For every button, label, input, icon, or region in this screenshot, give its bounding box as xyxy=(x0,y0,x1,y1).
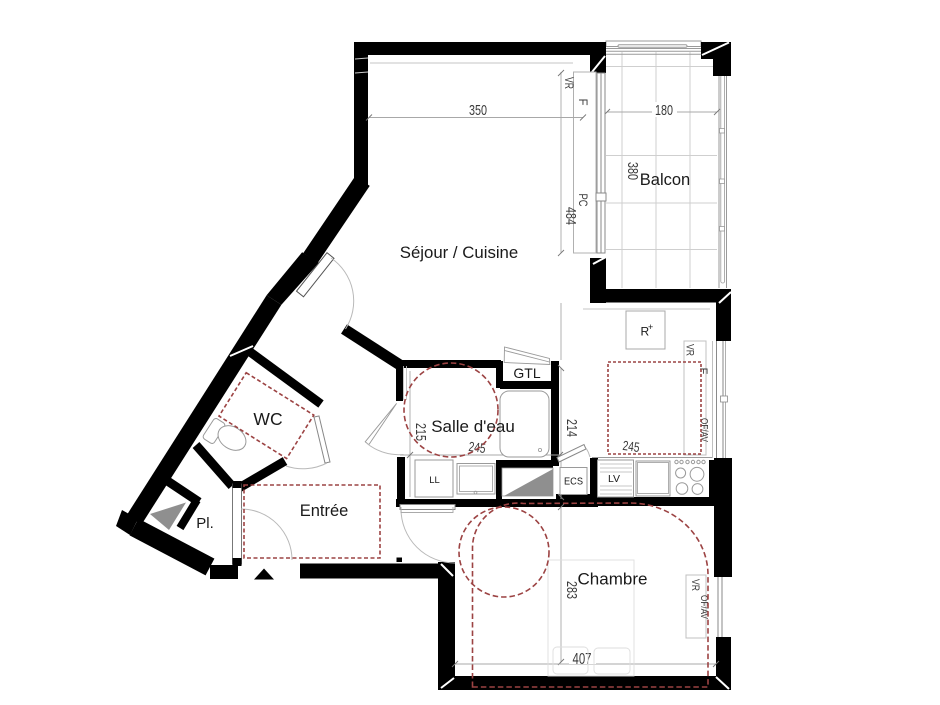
svg-text:VR: VR xyxy=(684,344,696,356)
svg-text:WC: WC xyxy=(253,409,282,429)
svg-text:Séjour / Cuisine: Séjour / Cuisine xyxy=(400,243,518,262)
svg-text:LV: LV xyxy=(608,473,620,485)
svg-text:180: 180 xyxy=(655,102,673,119)
svg-text:Balcon: Balcon xyxy=(640,171,690,189)
svg-text:484: 484 xyxy=(562,207,579,225)
svg-text:245: 245 xyxy=(622,438,641,455)
svg-text:LL: LL xyxy=(429,475,440,486)
svg-text:215: 215 xyxy=(412,423,429,441)
svg-text:Salle d'eau: Salle d'eau xyxy=(431,417,515,436)
svg-text:F: F xyxy=(697,368,709,375)
svg-text:350: 350 xyxy=(469,102,487,119)
svg-text:PC: PC xyxy=(576,194,588,207)
svg-text:VR: VR xyxy=(562,77,574,89)
svg-text:ECS: ECS xyxy=(564,477,583,488)
svg-text:Entrée: Entrée xyxy=(300,502,349,520)
svg-text:214: 214 xyxy=(563,419,580,437)
svg-text:F: F xyxy=(576,98,588,105)
svg-text:Pl.: Pl. xyxy=(196,515,214,532)
svg-text:VR: VR xyxy=(689,579,701,591)
svg-text:Chambre: Chambre xyxy=(578,570,648,589)
svg-text:GTL: GTL xyxy=(513,365,540,381)
svg-text:OF/AV: OF/AV xyxy=(698,418,710,442)
svg-text:+: + xyxy=(648,322,653,332)
svg-text:407: 407 xyxy=(573,651,592,668)
svg-text:380: 380 xyxy=(624,162,641,180)
